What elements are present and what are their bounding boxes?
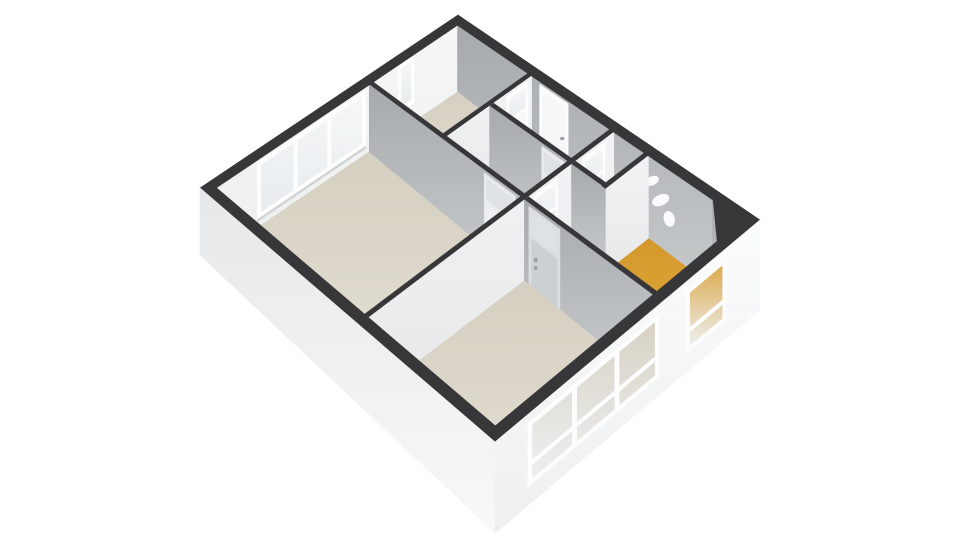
front-door-handle [560,137,564,140]
se-window-mullion-1 [572,388,576,444]
bottomroom-door-lock [534,266,537,270]
floorplan-viewport[interactable] [0,0,960,540]
floorplan-scene [200,15,760,533]
toproom-window-glass [402,62,411,106]
living-window-mullion-2 [328,118,331,167]
living-window-mullion-1 [294,141,298,190]
bottomroom-door-handle [534,258,538,263]
se-window-mullion-2 [615,353,619,409]
floorplan-3d-canvas[interactable] [0,0,960,540]
